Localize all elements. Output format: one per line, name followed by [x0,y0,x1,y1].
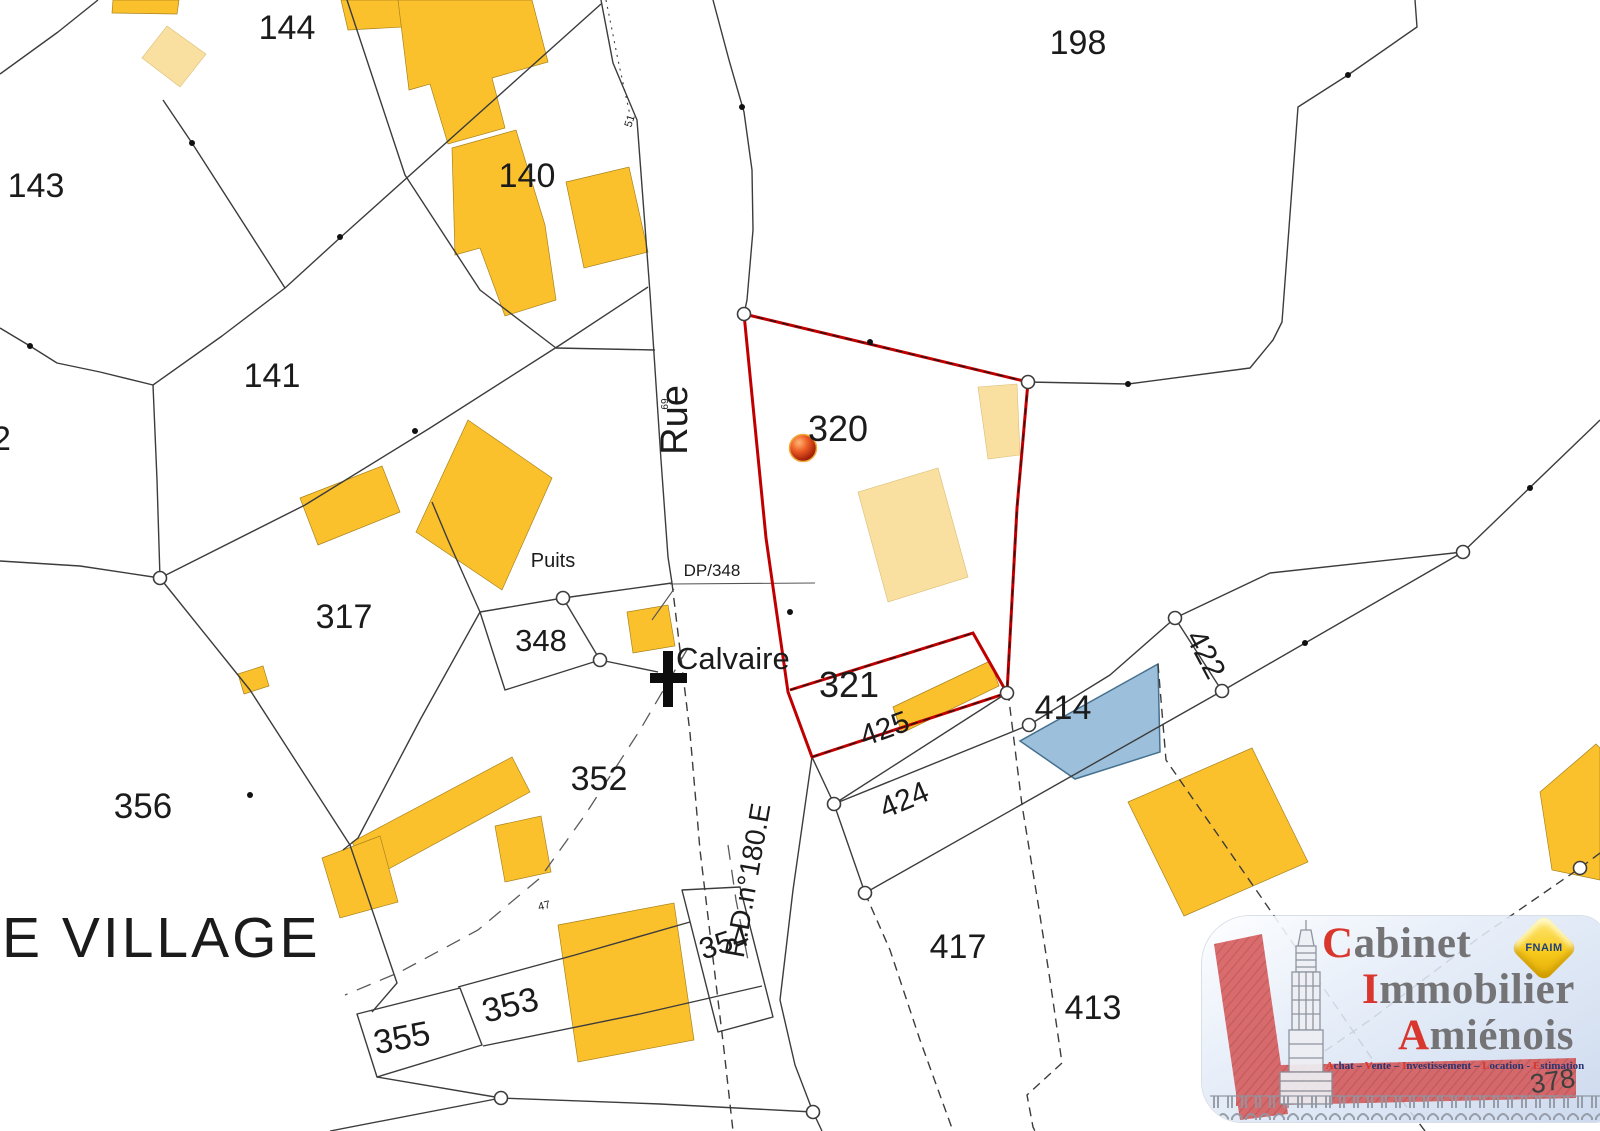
map-label-320: 320 [808,408,868,449]
map-label-424: 424 [875,775,934,825]
map-label-2: 2 [0,420,11,458]
buildings [112,0,1600,1062]
map-label-69: 69 [660,398,671,410]
map-label-321: 321 [819,664,879,705]
map-label-r-d-n-180-e: R.D.n°180.E [719,801,777,960]
map-label-348: 348 [515,623,567,658]
map-label-144: 144 [259,9,316,47]
logo-tagline: Achat – Vente – Investissement – Locatio… [1312,1060,1598,1072]
map-label-140: 140 [499,157,556,195]
map-label-417: 417 [930,928,987,966]
map-label-317: 317 [316,598,373,636]
map-label-47: 47 [537,899,552,914]
cadastral-map-viewport[interactable]: 1441981431402141317348352356320321425424… [0,0,1600,1131]
annex-buildings [142,26,1020,602]
logo-title-line-1: Cabinet [1322,922,1471,965]
map-label-355: 355 [370,1014,433,1062]
logo-title-line-3: Amiénois [1398,1014,1574,1057]
agency-logo-card: Cabinet Immobilier Amiénois Achat – Vent… [1202,916,1600,1122]
map-label-425: 425 [856,705,914,753]
map-label-141: 141 [244,357,301,395]
map-label-352: 352 [571,760,628,798]
map-label-rue: Rue [654,385,696,455]
map-label-e-village: E VILLAGE [2,906,321,970]
map-label-dp-348: DP/348 [684,561,741,580]
map-label-calvaire: Calvaire [676,641,790,676]
logo-arcade-strip [1210,1096,1600,1120]
map-label-414: 414 [1035,689,1092,727]
map-label-143: 143 [8,167,65,205]
map-label-422: 422 [1179,625,1232,685]
map-label-353: 353 [478,980,542,1031]
map-label-puits: Puits [531,550,575,572]
map-label-356: 356 [114,787,172,826]
map-labels: 1441981431402141317348352356320321425424… [0,9,1232,1062]
map-label-198: 198 [1050,24,1107,62]
map-label-413: 413 [1065,989,1122,1027]
